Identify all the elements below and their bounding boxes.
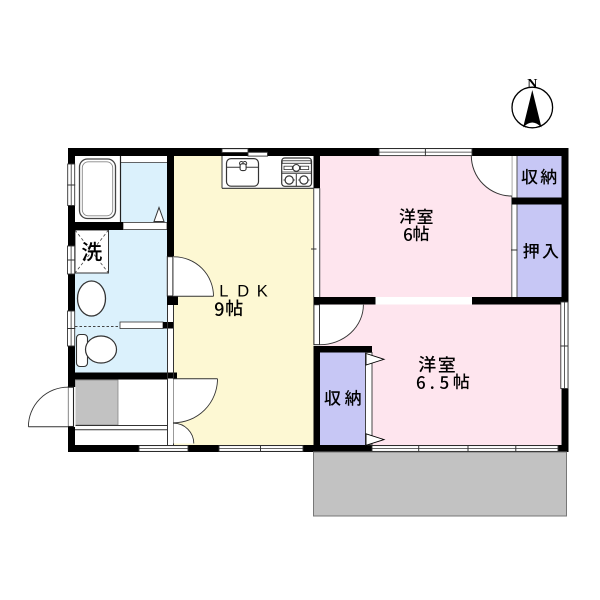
svg-text:K: K [257, 283, 268, 301]
svg-text:N: N [527, 77, 537, 92]
svg-text:D: D [237, 283, 249, 301]
svg-text:L: L [219, 283, 228, 301]
